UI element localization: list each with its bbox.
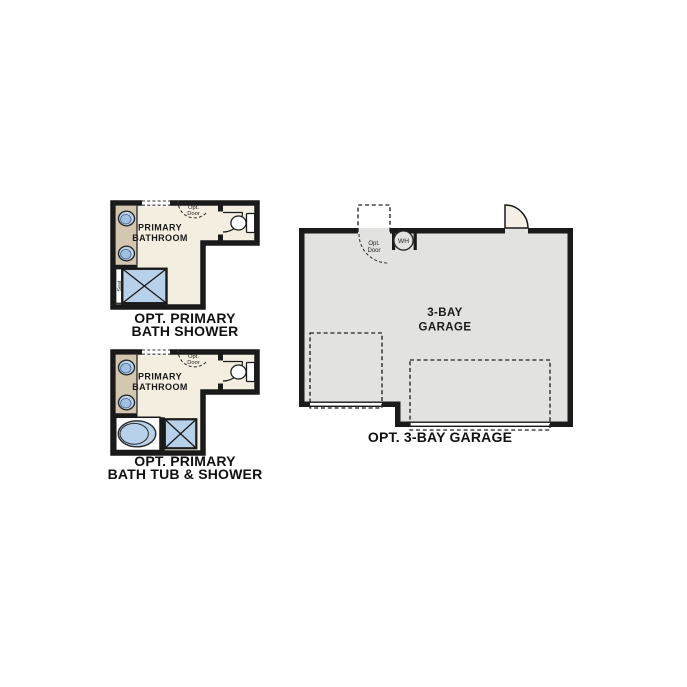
wall-top xyxy=(528,228,573,234)
room-label-text: PRIMARY xyxy=(138,223,182,233)
door-swing-arc xyxy=(505,205,528,228)
caption-opt-primary-bath-tub-shower: OPT. PRIMARY BATH TUB & SHOWER xyxy=(90,455,280,481)
opt-door-label: Opt. xyxy=(188,354,199,360)
caption-text: BATH SHOWER xyxy=(95,325,275,338)
opt-door-label: Opt. xyxy=(188,205,199,211)
wall-bottom-right xyxy=(550,422,568,428)
caption-opt-3-bay-garage: OPT. 3-BAY GARAGE xyxy=(350,431,530,444)
room-label-text: PRIMARY xyxy=(138,372,182,382)
wall-opening xyxy=(142,200,170,207)
room-label: PRIMARY BATHROOM xyxy=(132,223,188,244)
toilet-tank xyxy=(247,214,255,233)
garage-door-right xyxy=(410,422,550,428)
caption-opt-primary-bath-shower: OPT. PRIMARY BATH SHOWER xyxy=(95,312,275,338)
optional-door-dashed-jamb xyxy=(358,205,390,232)
room-label-text: BATHROOM xyxy=(132,382,188,392)
plan-opt-primary-bath-shower: Seat Opt. Door PRIMARY BATHROOM xyxy=(108,195,264,310)
sink xyxy=(119,211,135,226)
wc-wall-stub xyxy=(218,235,223,244)
wh-wall-stub xyxy=(414,234,417,251)
tub-outer xyxy=(118,421,156,447)
caption-text: OPT. 3-BAY GARAGE xyxy=(350,431,530,444)
room-label-text: GARAGE xyxy=(419,322,472,334)
shower: Seat xyxy=(116,269,167,304)
floor-plan-sheet: Seat Opt. Door PRIMARY BATHROOM OPT. xyxy=(0,0,687,687)
bathtub xyxy=(116,417,165,450)
room-label-text: 3-BAY xyxy=(427,307,462,319)
wall-bottom-left xyxy=(382,402,401,408)
entry-door xyxy=(505,205,528,228)
wall-top xyxy=(299,228,358,234)
garage-door-left xyxy=(310,402,382,408)
water-heater-label: WH xyxy=(398,238,409,245)
opt-door-label: Door xyxy=(187,211,200,217)
shower xyxy=(165,419,197,448)
opt-door-label: Opt. xyxy=(368,241,380,247)
wall-left xyxy=(299,228,305,407)
wall-bottom-right xyxy=(395,422,410,428)
plan-opt-3-bay-garage: WH Opt. Door 3-BAY GARAGE xyxy=(295,195,585,435)
opt-door-label: Door xyxy=(367,248,380,254)
wall-opening xyxy=(142,349,170,356)
room-label-text: BATHROOM xyxy=(132,233,188,243)
wc-wall-stub xyxy=(218,353,223,361)
opt-door-label: Door xyxy=(187,360,200,366)
caption-text: BATH TUB & SHOWER xyxy=(90,468,280,481)
room-label: PRIMARY BATHROOM xyxy=(132,372,188,393)
toilet-bowl xyxy=(231,216,246,230)
wall-right xyxy=(568,228,574,427)
toilet-bowl xyxy=(231,365,246,379)
wall-bottom-left xyxy=(299,402,310,408)
sink xyxy=(119,246,135,261)
wc-wall-stub xyxy=(218,204,223,212)
sink xyxy=(119,395,135,410)
wc-wall-stub xyxy=(218,384,223,393)
plan-opt-primary-bath-tub-shower: Opt. Door PRIMARY BATHROOM xyxy=(108,344,264,458)
toilet-tank xyxy=(247,363,255,382)
sink xyxy=(119,360,135,375)
